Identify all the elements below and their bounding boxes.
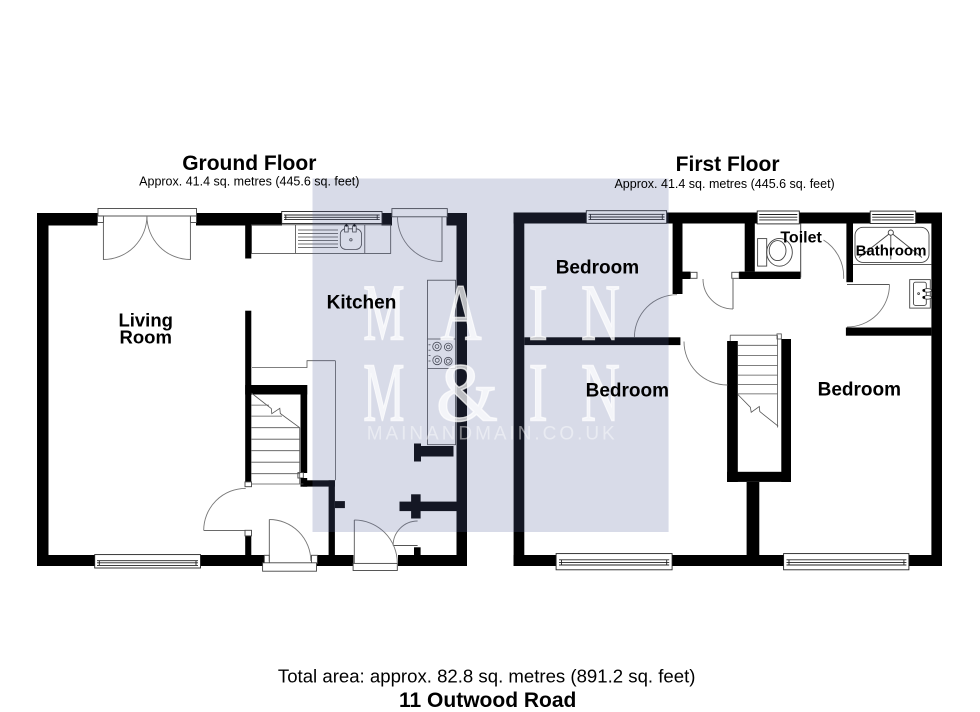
svg-text:I: I xyxy=(529,270,548,358)
svg-text:Total area: approx. 82.8 sq. m: Total area: approx. 82.8 sq. metres (891… xyxy=(278,666,696,687)
svg-text:MAINANDMAIN.CO.UK: MAINANDMAIN.CO.UK xyxy=(367,423,615,444)
svg-text:M: M xyxy=(363,270,404,358)
svg-text:A: A xyxy=(440,270,481,358)
svg-text:Ground Floor: Ground Floor xyxy=(182,152,316,175)
svg-text:First Floor: First Floor xyxy=(676,153,780,176)
svg-text:Bathroom: Bathroom xyxy=(856,243,927,260)
svg-text:Bedroom: Bedroom xyxy=(586,381,669,402)
svg-text:Bedroom: Bedroom xyxy=(818,380,901,401)
svg-text:N: N xyxy=(581,270,620,358)
svg-text:Kitchen: Kitchen xyxy=(327,293,397,314)
svg-text:Approx. 41.4 sq. metres (445.6: Approx. 41.4 sq. metres (445.6 sq. feet) xyxy=(614,177,834,191)
svg-text:Approx. 41.4 sq. metres (445.6: Approx. 41.4 sq. metres (445.6 sq. feet) xyxy=(139,175,359,189)
svg-text:Room: Room xyxy=(119,326,171,347)
svg-text:11 Outwood Road: 11 Outwood Road xyxy=(399,689,576,712)
svg-text:Bedroom: Bedroom xyxy=(556,258,639,279)
svg-text:Toilet: Toilet xyxy=(780,230,822,247)
